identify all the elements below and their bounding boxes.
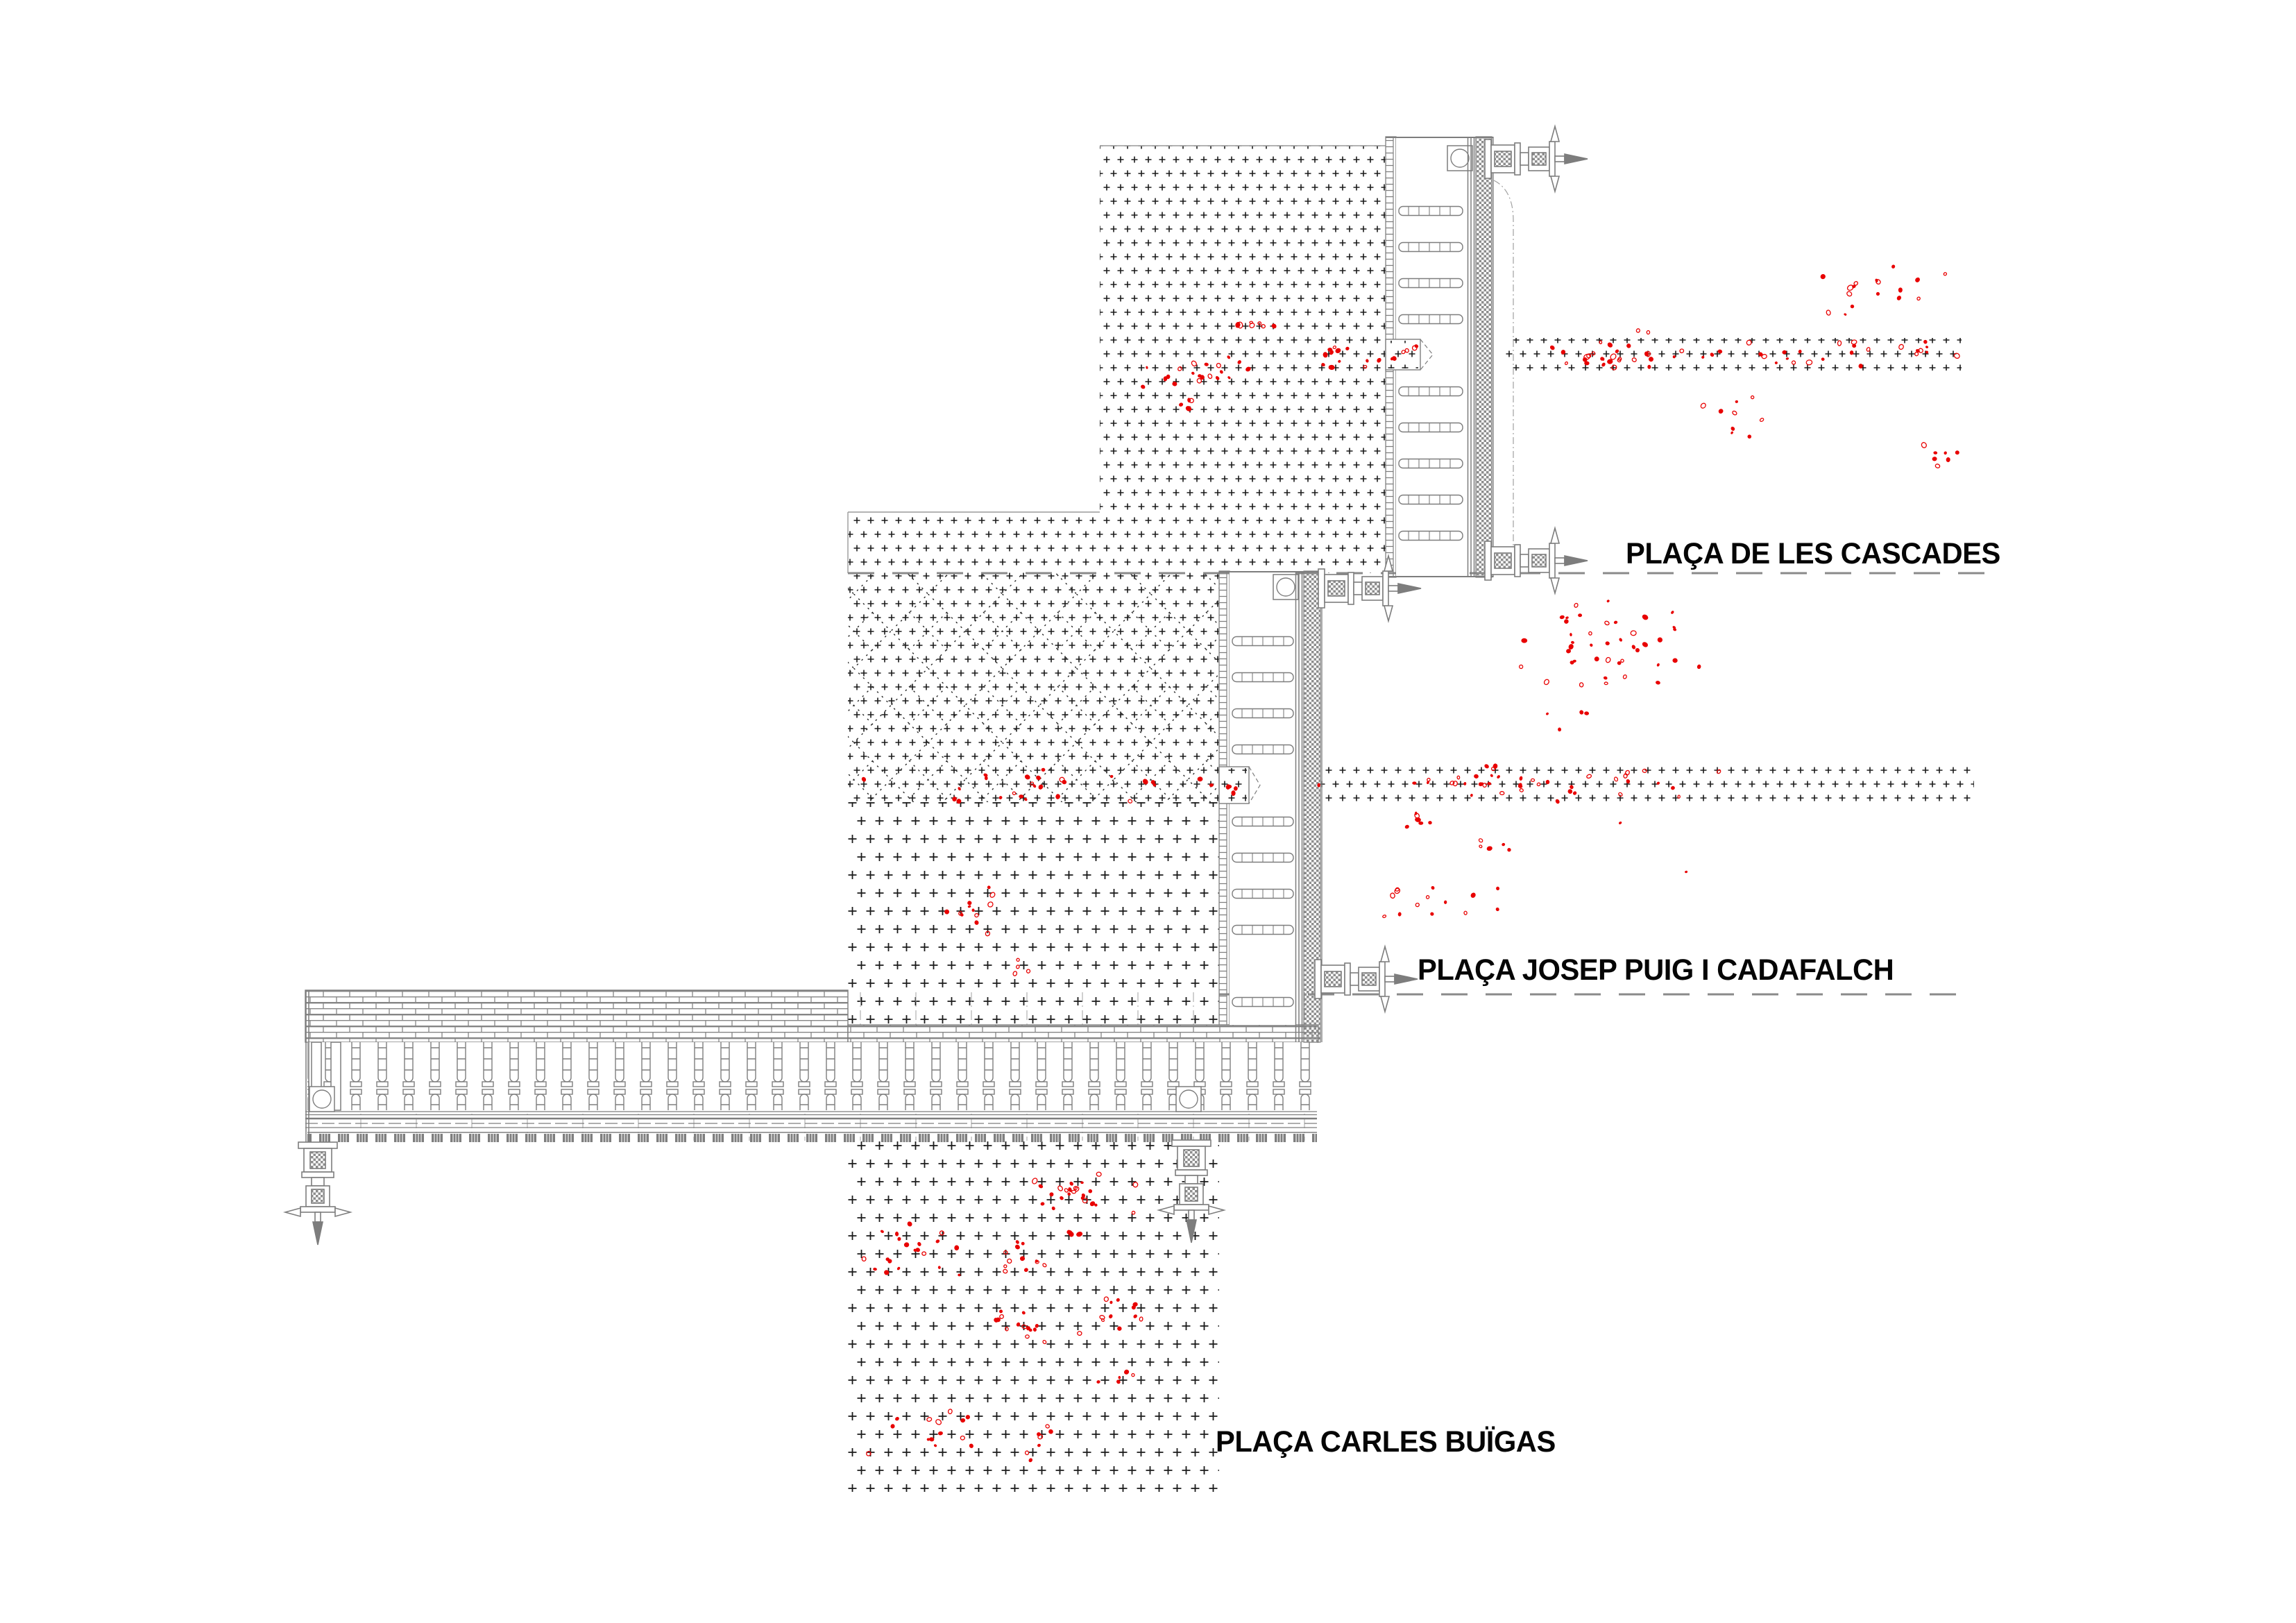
texture-band-cadafalch (1320, 765, 1974, 803)
texture-band-cascades (1506, 338, 1962, 371)
crowd-cluster (1618, 821, 1622, 825)
texture-plaza-buigas (848, 1141, 1219, 1492)
plan-drawing (0, 0, 2296, 1623)
crowd-cluster (1685, 870, 1688, 873)
lamp-post-finial-down (285, 1142, 350, 1245)
plan-canvas: PLAÇA DE LES CASCADES PLAÇA JOSEP PUIG I… (0, 0, 2296, 1623)
lamp-post-finial-right (1485, 126, 1588, 192)
texture-plaza-cascades-main (1100, 146, 1386, 573)
crowd-cluster (1819, 264, 1947, 316)
crowd-cluster (1404, 812, 1432, 830)
crowd-cluster (1519, 600, 1701, 687)
crowd-cluster (1921, 441, 1959, 468)
crowd-cluster (1545, 709, 1589, 731)
label-placa-de-les-cascades: PLAÇA DE LES CASCADES (1626, 539, 2000, 569)
crowd-cluster (1478, 838, 1511, 853)
crowd-cluster (1382, 885, 1499, 918)
crowd-cluster (1636, 328, 1650, 334)
label-placa-josep-puig-i-cadafalch: PLAÇA JOSEP PUIG I CADAFALCH (1418, 955, 1894, 985)
lamp-post-finial-right (1315, 946, 1418, 1012)
texture-plaza-cascades-ext (848, 512, 1100, 573)
crowd-cluster (1700, 396, 1764, 439)
texture-plaza-cadafalch-sparse (848, 802, 1219, 1025)
texture-plaza-cadafalch-ornate (848, 573, 1219, 802)
label-placa-carles-buigas: PLAÇA CARLES BUÏGAS (1216, 1427, 1556, 1457)
lamp-post-finial-right (1485, 528, 1588, 593)
